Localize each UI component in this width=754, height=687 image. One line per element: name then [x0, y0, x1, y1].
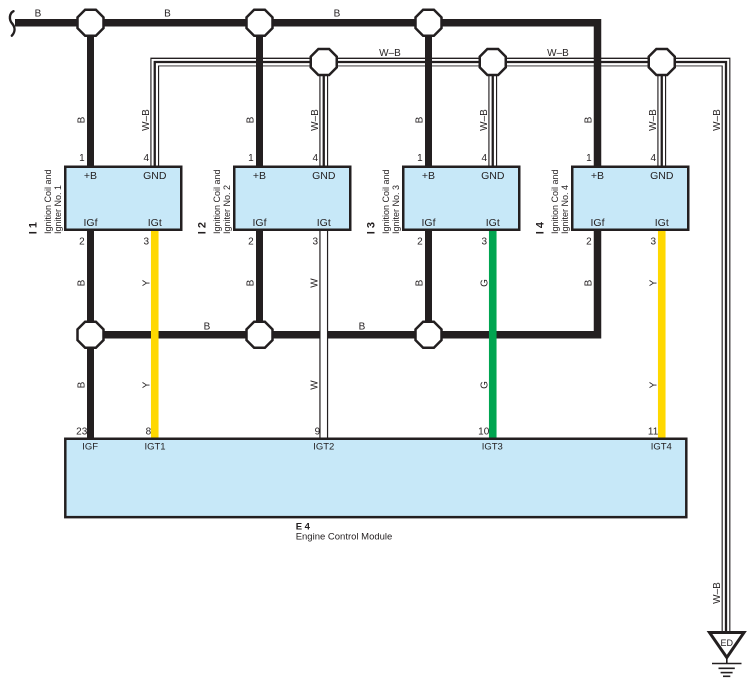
svg-text:Ignition Coil and: Ignition Coil and: [43, 169, 53, 234]
svg-text:IGF: IGF: [82, 442, 98, 453]
svg-text:IGT4: IGT4: [651, 442, 672, 453]
svg-text:IGt: IGt: [486, 217, 500, 229]
svg-text:2: 2: [79, 237, 85, 248]
svg-text:Y: Y: [649, 279, 660, 286]
svg-text:IGt: IGt: [655, 217, 669, 229]
svg-text:IGf: IGf: [590, 217, 604, 229]
svg-text:9: 9: [315, 427, 321, 438]
svg-text:1: 1: [417, 153, 423, 164]
svg-text:Igniter No. 1: Igniter No. 1: [53, 185, 63, 234]
svg-text:IGT3: IGT3: [482, 442, 503, 453]
svg-text:W–B: W–B: [379, 48, 401, 59]
svg-text:W–B: W–B: [712, 109, 723, 131]
svg-text:W–B: W–B: [712, 582, 723, 604]
svg-text:I 1: I 1: [28, 222, 40, 234]
svg-text:+B: +B: [422, 170, 435, 182]
svg-text:Igniter No. 3: Igniter No. 3: [391, 185, 401, 234]
svg-text:3: 3: [143, 237, 149, 248]
svg-text:2: 2: [248, 237, 254, 248]
svg-text:11: 11: [648, 427, 659, 438]
svg-text:B: B: [246, 279, 257, 286]
svg-text:W: W: [310, 278, 321, 288]
svg-text:B: B: [584, 279, 595, 286]
svg-text:Ignition Coil and: Ignition Coil and: [212, 169, 222, 234]
svg-text:IGT2: IGT2: [313, 442, 334, 453]
svg-text:I 3: I 3: [366, 222, 378, 234]
svg-text:W–B: W–B: [310, 109, 321, 131]
svg-text:4: 4: [481, 153, 487, 164]
svg-text:B: B: [359, 322, 366, 333]
svg-text:IGT1: IGT1: [144, 442, 165, 453]
svg-text:10: 10: [478, 427, 490, 438]
svg-text:1: 1: [586, 153, 592, 164]
svg-text:+B: +B: [253, 170, 266, 182]
svg-text:4: 4: [312, 153, 318, 164]
svg-text:4: 4: [650, 153, 656, 164]
svg-text:Y: Y: [649, 381, 660, 388]
svg-text:Igniter No. 4: Igniter No. 4: [560, 185, 570, 234]
svg-text:B: B: [204, 322, 211, 333]
svg-text:23: 23: [76, 427, 88, 438]
svg-text:1: 1: [248, 153, 254, 164]
svg-text:W–B: W–B: [141, 109, 152, 131]
svg-text:GND: GND: [143, 170, 167, 182]
svg-text:Y: Y: [142, 381, 153, 388]
svg-text:G: G: [480, 279, 491, 287]
svg-text:Y: Y: [142, 279, 153, 286]
svg-text:Engine Control Module: Engine Control Module: [296, 532, 393, 543]
svg-text:Ignition Coil and: Ignition Coil and: [550, 169, 560, 234]
svg-text:I 4: I 4: [535, 221, 547, 234]
svg-text:G: G: [480, 381, 491, 389]
svg-text:3: 3: [650, 237, 656, 248]
svg-text:3: 3: [312, 237, 318, 248]
svg-text:B: B: [77, 279, 88, 286]
svg-text:2: 2: [417, 237, 423, 248]
svg-text:I 2: I 2: [197, 222, 209, 234]
svg-text:IGt: IGt: [148, 217, 162, 229]
svg-text:B: B: [35, 9, 42, 20]
svg-text:Igniter No. 2: Igniter No. 2: [222, 185, 232, 234]
svg-text:GND: GND: [481, 170, 505, 182]
svg-text:3: 3: [481, 237, 487, 248]
svg-text:B: B: [164, 9, 171, 20]
svg-text:+B: +B: [84, 170, 97, 182]
svg-text:GND: GND: [312, 170, 336, 182]
svg-text:+B: +B: [591, 170, 604, 182]
svg-text:B: B: [584, 116, 595, 123]
svg-text:B: B: [334, 9, 341, 20]
svg-text:B: B: [415, 116, 426, 123]
svg-text:B: B: [246, 116, 257, 123]
svg-text:W–B: W–B: [479, 109, 490, 131]
svg-text:W: W: [310, 380, 321, 390]
svg-text:IGf: IGf: [421, 217, 435, 229]
svg-text:GND: GND: [650, 170, 674, 182]
svg-text:IGf: IGf: [252, 217, 266, 229]
svg-text:IGf: IGf: [83, 217, 97, 229]
svg-text:4: 4: [143, 153, 149, 164]
svg-text:B: B: [77, 381, 88, 388]
svg-text:W–B: W–B: [547, 48, 569, 59]
svg-text:Ignition Coil and: Ignition Coil and: [381, 169, 391, 234]
svg-text:B: B: [77, 116, 88, 123]
svg-text:1: 1: [79, 153, 85, 164]
svg-text:ED: ED: [721, 638, 734, 648]
svg-text:B: B: [415, 279, 426, 286]
svg-text:IGt: IGt: [317, 217, 331, 229]
svg-text:W–B: W–B: [648, 109, 659, 131]
svg-text:8: 8: [146, 427, 152, 438]
svg-text:2: 2: [586, 237, 592, 248]
